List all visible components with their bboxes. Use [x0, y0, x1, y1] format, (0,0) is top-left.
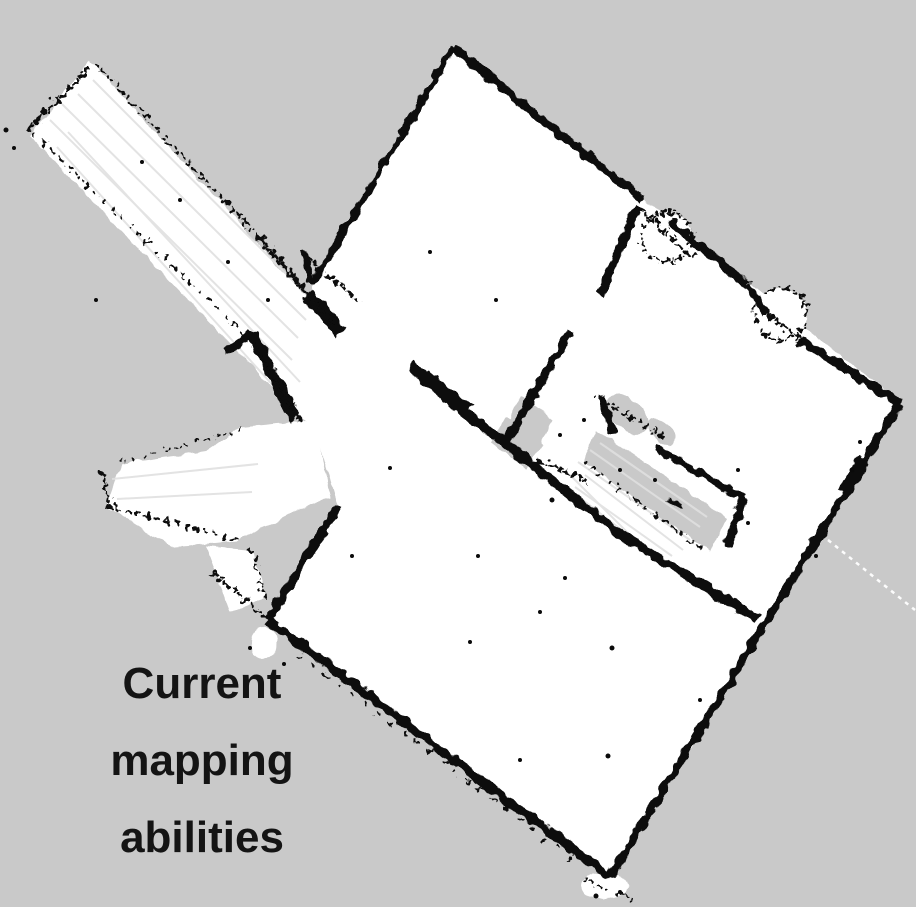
slam-map-figure: Current mapping abilities [0, 0, 916, 907]
noise-dot [468, 640, 472, 644]
noise-dot [814, 554, 818, 558]
noise-dot [858, 440, 862, 444]
noise-dot [226, 260, 230, 264]
noise-dot [178, 198, 182, 202]
noise-dot [550, 498, 555, 503]
noise-dot [698, 698, 702, 702]
noise-dot [12, 146, 16, 150]
noise-dot [563, 576, 567, 580]
noise-dot [736, 468, 740, 472]
noise-dot [538, 610, 542, 614]
noise-dot [428, 250, 432, 254]
caption-line-2: mapping [62, 722, 342, 799]
caption-line-1: Current [62, 645, 342, 722]
noise-dot [494, 298, 498, 302]
noise-dot [388, 466, 392, 470]
map-caption: Current mapping abilities [62, 645, 342, 876]
noise-dot [594, 894, 599, 899]
noise-dot [582, 418, 586, 422]
noise-dot [518, 758, 522, 762]
noise-dot [94, 298, 98, 302]
noise-dot [618, 890, 622, 894]
noise-dot [266, 298, 270, 302]
noise-dot [350, 554, 354, 558]
noise-dot [606, 754, 611, 759]
noise-dot [610, 646, 615, 651]
caption-line-3: abilities [62, 799, 342, 876]
noise-dot [850, 468, 855, 473]
noise-dot [4, 128, 9, 133]
noise-dot [653, 478, 657, 482]
noise-dot [476, 554, 480, 558]
noise-dot [558, 433, 562, 437]
noise-dot [140, 160, 144, 164]
noise-dot [746, 521, 750, 525]
wall-notch-blob [755, 288, 807, 340]
noise-dot [618, 468, 622, 472]
